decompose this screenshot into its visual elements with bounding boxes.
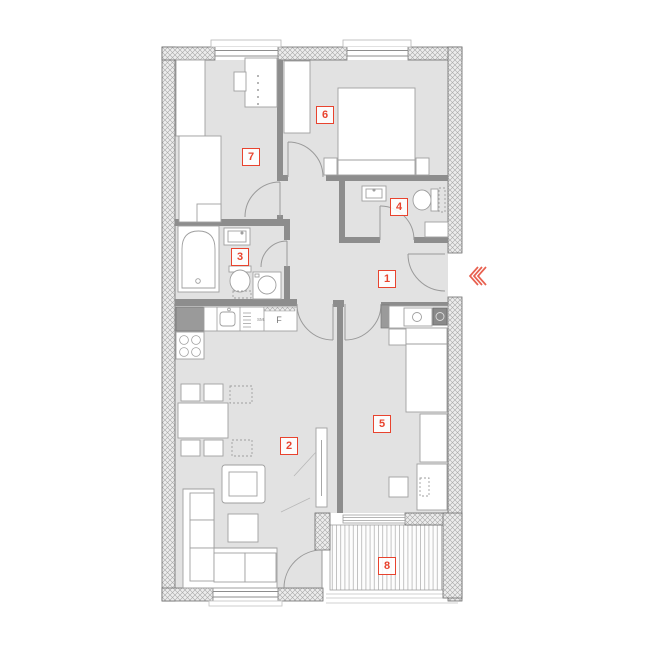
entrance-arrow-icon	[470, 267, 486, 285]
room-label-7: 7	[242, 148, 260, 166]
room-label-4: 4	[390, 198, 408, 216]
room-label-2: 2	[280, 437, 298, 455]
floor-plan: F SM.	[0, 0, 650, 650]
room-label-8: 8	[378, 557, 396, 575]
fridge-label: F	[276, 315, 282, 325]
room-label-6: 6	[316, 106, 334, 124]
room-label-1: 1	[378, 270, 396, 288]
room-label-3: 3	[231, 248, 249, 266]
dishwasher-label: SM.	[257, 317, 265, 322]
floor-plan-drawing: F SM.	[0, 0, 650, 650]
room-label-5: 5	[373, 415, 391, 433]
